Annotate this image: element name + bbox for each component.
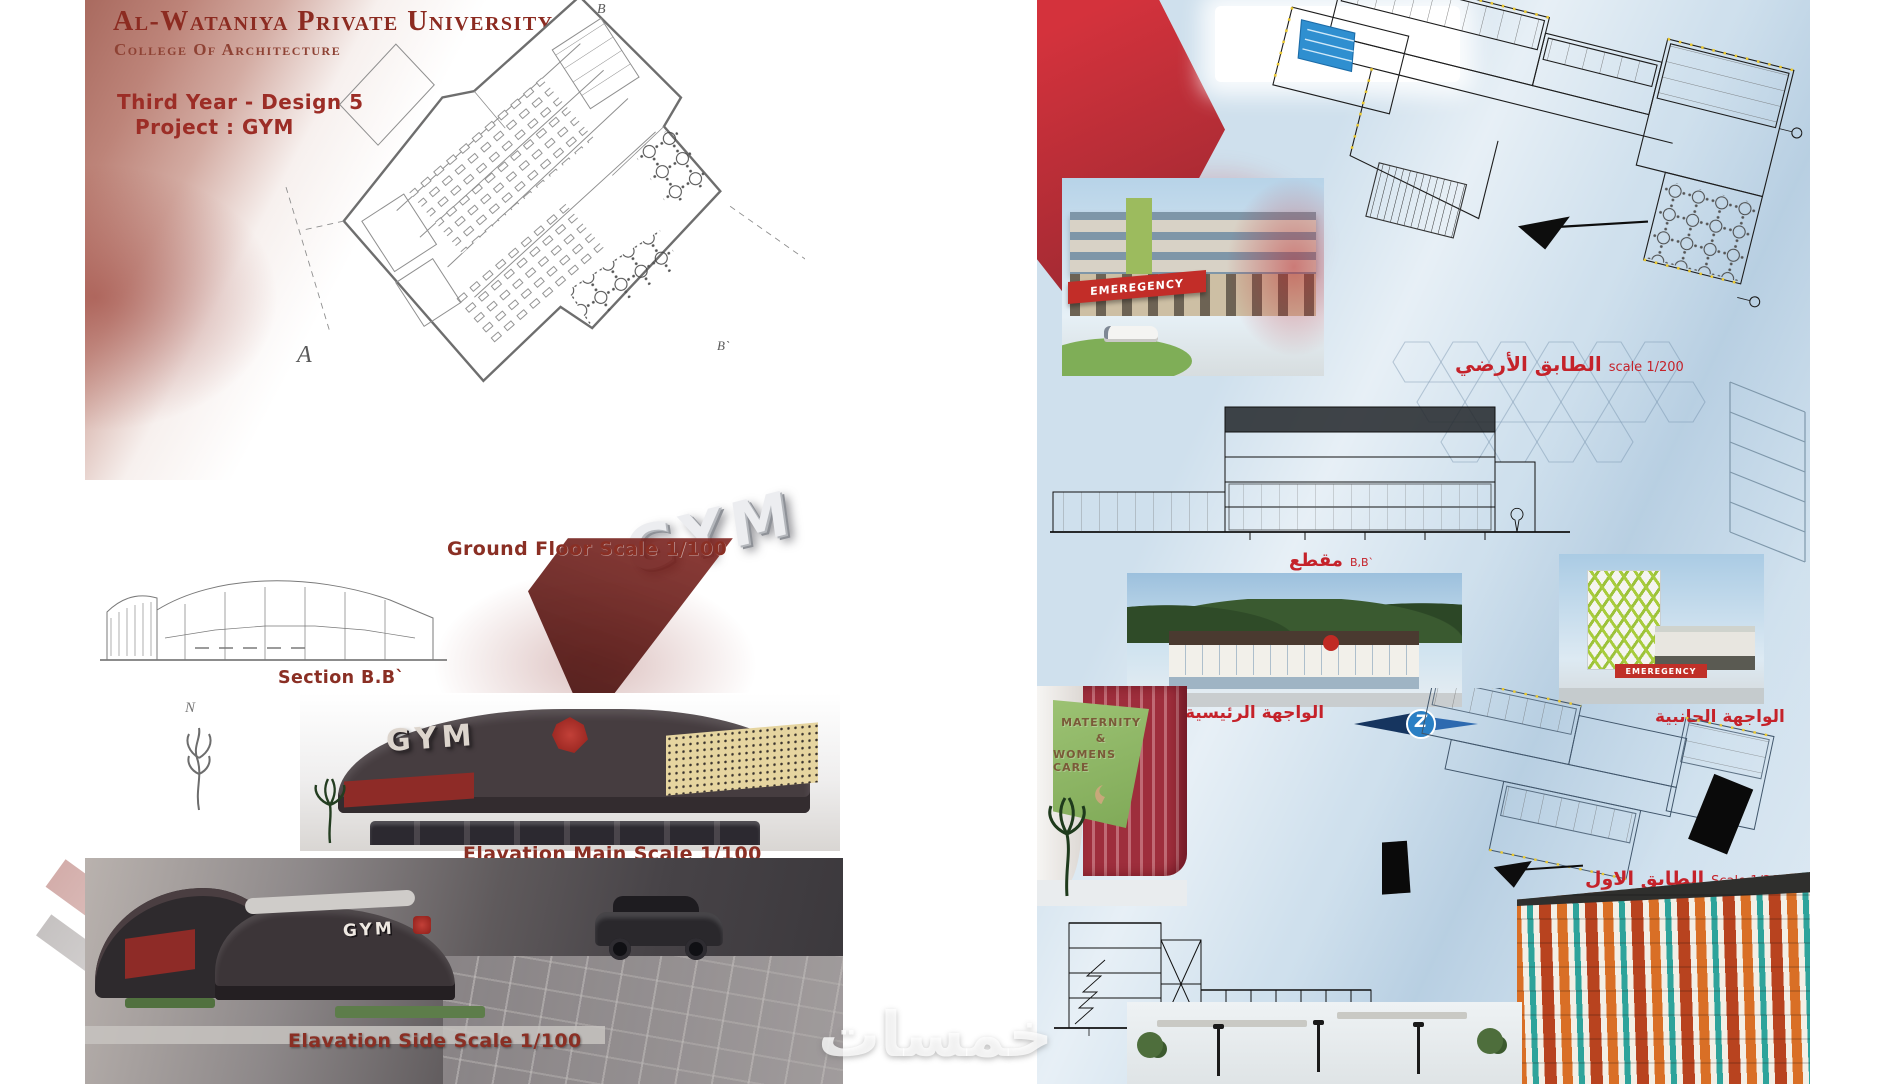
red-entrance-band	[344, 772, 474, 807]
north-letter: N	[185, 700, 195, 717]
section-bb-label: مقطع B,B`	[1289, 550, 1374, 571]
side-emergency-sign-text: EMEREGENCY	[1626, 667, 1697, 676]
section-marker-b: B	[597, 2, 606, 18]
tree	[1137, 1032, 1163, 1058]
lawn	[1062, 338, 1192, 376]
street-lamp	[1317, 1024, 1320, 1072]
street-view-render	[1127, 1002, 1522, 1084]
emergency-sign-text: EMEREGENCY	[1090, 276, 1184, 297]
palm-tree-icon	[310, 775, 350, 845]
main-elevation-render: GYM	[300, 693, 840, 851]
ground-floor-label: Ground Floor Scale 1/100	[447, 538, 727, 560]
car-wheel	[685, 938, 707, 960]
roof-slab	[1337, 1012, 1467, 1019]
side-elevation-label: Elavation Side Scale 1/100	[288, 1030, 582, 1052]
ground-floor-arabic: الطابق الأرضي	[1455, 352, 1602, 376]
emergency-entrance-render: EMEREGENCY	[1062, 178, 1324, 376]
roof-slab	[1157, 1020, 1307, 1027]
section-marker-b-prime: B`	[717, 338, 729, 354]
emergency-band: EMEREGENCY	[1615, 664, 1707, 678]
right-board: EMEREGENCY الطابق الأرضي scale 1/200	[1037, 0, 1810, 1084]
presentation-sheet: Al-Wataniya Private University College O…	[0, 0, 1887, 1084]
section-bb-arabic: مقطع	[1289, 550, 1343, 571]
car-render	[595, 896, 723, 954]
maternity-building-render: MATERNITY & WOMENS CARE	[1037, 686, 1187, 906]
main-facade-arabic: الواجهة الرئيسية	[1185, 703, 1324, 723]
gym-building-side: GYM	[95, 864, 525, 1014]
hospital-section-bb-drawing	[1045, 392, 1575, 557]
street-lamp	[1217, 1028, 1220, 1076]
gym-section-bb-drawing	[95, 560, 455, 675]
gym-building-sign: GYM	[385, 718, 478, 759]
north-arrow-sketch	[177, 718, 221, 814]
ground-floor-plan-label: الطابق الأرضي scale 1/200	[1455, 352, 1684, 376]
striped-facade-render	[1517, 872, 1810, 1084]
bodybuilder-logo-small	[413, 916, 431, 934]
gym-side-sign: GYM	[343, 919, 396, 942]
maternity-line3: WOMENS CARE	[1053, 748, 1149, 774]
left-board: Al-Wataniya Private University College O…	[85, 0, 788, 1084]
red-overlay	[1204, 178, 1324, 376]
maternity-line1: MATERNITY	[1061, 716, 1141, 729]
section-bb-ref: B,B`	[1350, 556, 1374, 569]
section-marker-a: A	[297, 342, 312, 369]
gym-ground-floor-plan-drawing	[235, 0, 805, 545]
hedge	[335, 1006, 485, 1018]
white-car	[1104, 326, 1158, 342]
car-wheel	[609, 938, 631, 960]
braced-tower	[1587, 570, 1661, 670]
main-facade-label: الواجهة الرئيسية	[1185, 703, 1324, 723]
side-elevation-render: GYM Elavation Side Scale 1/100	[85, 858, 843, 1084]
hedge	[125, 998, 215, 1008]
red-crescent-logo	[1323, 635, 1339, 651]
parked-cars-strip	[370, 821, 760, 845]
tree	[1477, 1028, 1503, 1054]
palm-trees-icon	[1039, 790, 1099, 900]
ground-floor-scale: scale 1/200	[1609, 360, 1684, 375]
section-bb-label: Section B.B`	[278, 668, 405, 688]
khamsat-watermark: خمسات	[818, 998, 1038, 1071]
side-facade-render: EMEREGENCY	[1559, 554, 1764, 704]
facade-building	[1169, 631, 1419, 689]
street-lamp	[1417, 1026, 1420, 1074]
maternity-line2: &	[1096, 732, 1107, 745]
